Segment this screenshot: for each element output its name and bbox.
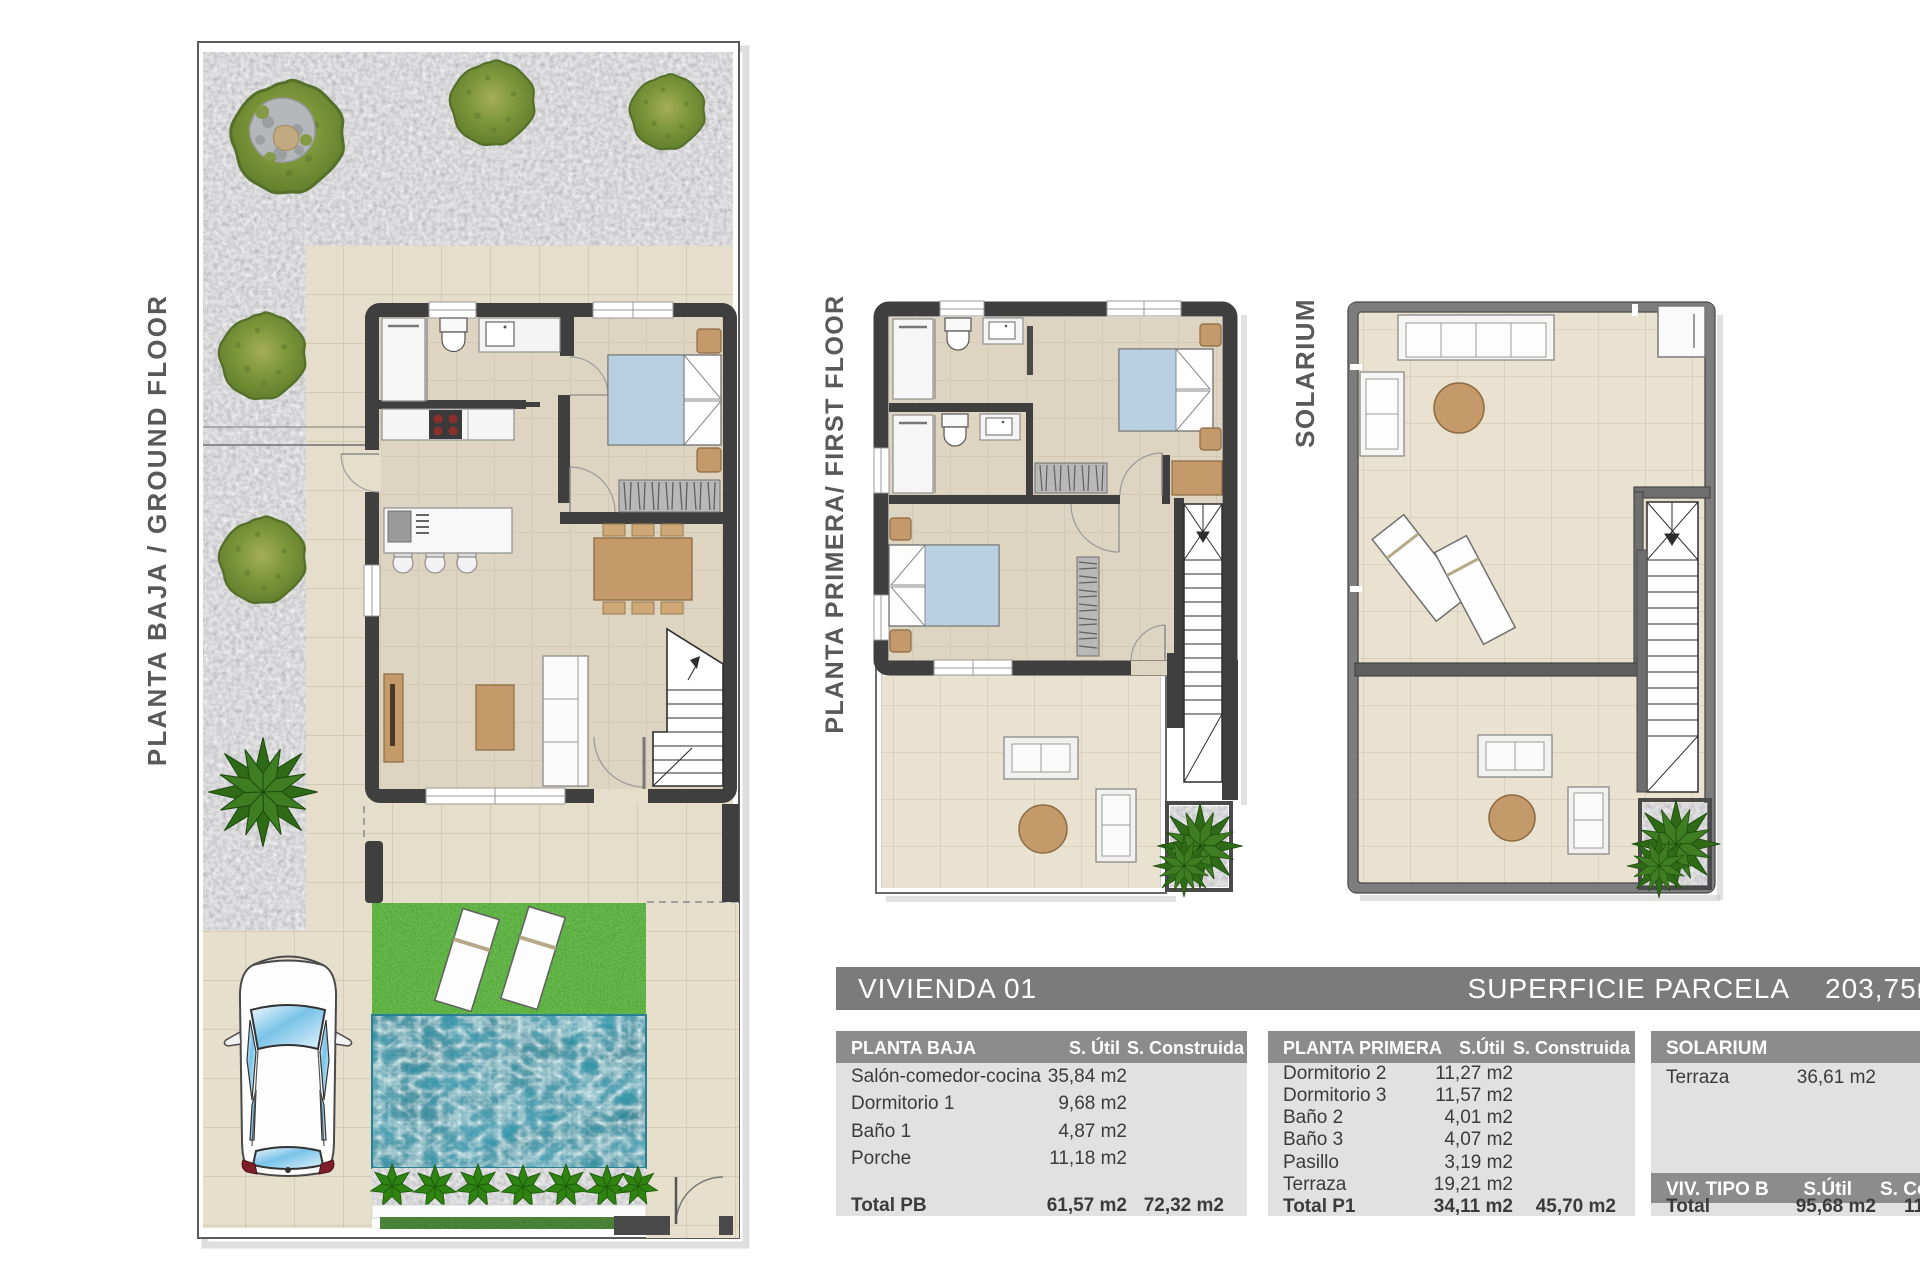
svg-text:35,84 m2: 35,84 m2 [1048, 1066, 1127, 1087]
svg-text:Baño 2: Baño 2 [1283, 1107, 1343, 1128]
svg-text:Dormitorio 2: Dormitorio 2 [1283, 1063, 1386, 1084]
svg-text:Baño 3: Baño 3 [1283, 1129, 1343, 1150]
svg-text:19,21 m2: 19,21 m2 [1434, 1174, 1513, 1195]
svg-text:PLANTA PRIMERA: PLANTA PRIMERA [1283, 1038, 1442, 1058]
svg-text:PLANTA BAJA / GROUND FLOOR: PLANTA BAJA / GROUND FLOOR [142, 294, 172, 766]
svg-text:11,18 m2: 11,18 m2 [1049, 1148, 1127, 1169]
svg-text:Total: Total [1666, 1196, 1710, 1217]
svg-text:PLANTA BAJA: PLANTA BAJA [851, 1038, 976, 1058]
svg-text:11: 11 [1904, 1196, 1920, 1217]
svg-text:Total PB: Total PB [851, 1195, 927, 1216]
svg-text:Baño 1: Baño 1 [851, 1121, 911, 1142]
svg-text:11,27 m2: 11,27 m2 [1435, 1063, 1513, 1084]
svg-text:4,87 m2: 4,87 m2 [1058, 1121, 1127, 1142]
svg-text:61,57 m2: 61,57 m2 [1047, 1195, 1127, 1216]
svg-text:11,57 m2: 11,57 m2 [1435, 1085, 1513, 1106]
svg-text:95,68 m2: 95,68 m2 [1796, 1196, 1876, 1217]
svg-text:Salón-comedor-cocina: Salón-comedor-cocina [851, 1066, 1042, 1087]
svg-text:4,07 m2: 4,07 m2 [1444, 1129, 1513, 1150]
svg-text:Pasillo: Pasillo [1283, 1152, 1339, 1173]
svg-text:PLANTA PRIMERA/ FIRST FLOOR: PLANTA PRIMERA/ FIRST FLOOR [821, 294, 849, 733]
svg-text:VIVIENDA 01: VIVIENDA 01 [858, 973, 1037, 1004]
svg-text:Porche: Porche [851, 1148, 911, 1169]
svg-text:SOLARIUM: SOLARIUM [1666, 1038, 1767, 1059]
svg-text:S.Útil: S.Útil [1459, 1037, 1505, 1058]
svg-text:4,01 m2: 4,01 m2 [1444, 1107, 1513, 1128]
svg-text:Terraza: Terraza [1666, 1067, 1730, 1088]
svg-text:9,68 m2: 9,68 m2 [1058, 1093, 1127, 1114]
svg-text:Dormitorio 1: Dormitorio 1 [851, 1093, 954, 1114]
svg-text:45,70 m2: 45,70 m2 [1536, 1196, 1616, 1217]
svg-text:Terraza: Terraza [1283, 1174, 1347, 1195]
svg-text:SUPERFICIE PARCELA: SUPERFICIE PARCELA [1468, 973, 1790, 1004]
svg-text:72,32 m2: 72,32 m2 [1144, 1195, 1224, 1216]
svg-text:203,75m2: 203,75m2 [1825, 973, 1920, 1004]
svg-text:3,19 m2: 3,19 m2 [1444, 1152, 1513, 1173]
svg-text:Total P1: Total P1 [1283, 1196, 1356, 1217]
svg-text:SOLARIUM: SOLARIUM [1290, 298, 1320, 448]
svg-text:34,11 m2: 34,11 m2 [1434, 1196, 1513, 1217]
svg-text:S. Construida: S. Construida [1127, 1038, 1245, 1058]
svg-text:36,61 m2: 36,61 m2 [1797, 1067, 1876, 1088]
svg-text:S. Útil: S. Útil [1069, 1037, 1120, 1058]
svg-text:Dormitorio 3: Dormitorio 3 [1283, 1085, 1386, 1106]
svg-text:S. Construida: S. Construida [1513, 1038, 1631, 1058]
